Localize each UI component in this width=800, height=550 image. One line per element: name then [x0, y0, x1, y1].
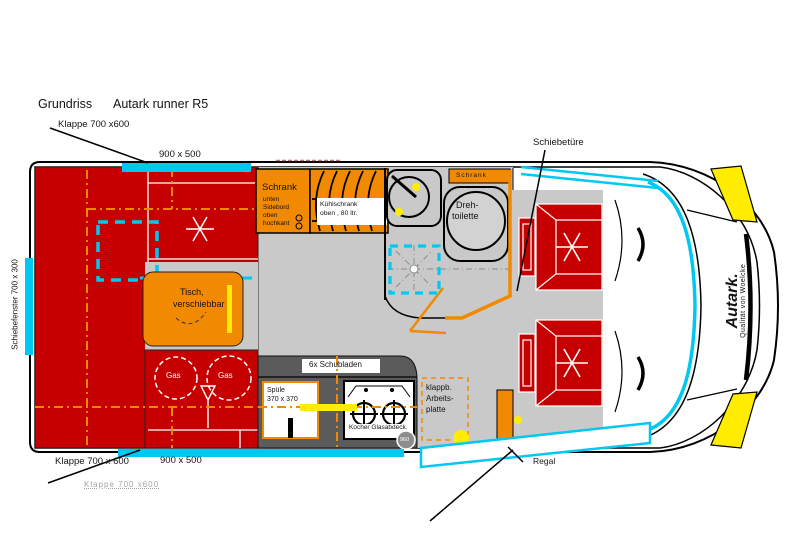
- table-rail: [227, 285, 232, 333]
- window-rear-side: [25, 258, 33, 355]
- drawers-label: 6x Schubladen: [309, 361, 362, 370]
- page-title: Grundriss: [38, 97, 92, 111]
- dim-circle-label: 960: [400, 437, 409, 443]
- label-bottom-hatch: Klappe 700 x 600: [55, 457, 129, 468]
- model-name: Autark runner R5: [113, 97, 208, 111]
- label-sliding-door: Schiebetüre: [533, 138, 584, 149]
- fridge-l2: oben , 80 ltr.: [320, 210, 357, 218]
- gas-label-2: Gas: [218, 372, 233, 381]
- worktop-l1: klappb.: [426, 384, 452, 393]
- toilet-l1: Dreh-: [456, 200, 479, 210]
- sink-l1: Spüle: [267, 387, 285, 395]
- floorplan-canvas: Grundriss Autark runner R5 Klappe 700 x6…: [0, 0, 800, 550]
- swivel-toilet: [444, 187, 508, 261]
- toilet-l2: toilette: [452, 211, 479, 221]
- label-top-window: 900 x 500: [159, 150, 201, 161]
- wardrobe-l2: unten: [263, 196, 279, 203]
- table-l1: Tisch,: [180, 287, 204, 297]
- brand-sub: Qualität von Woelcke: [740, 239, 748, 363]
- tap-icon: [288, 418, 293, 438]
- kitchen-rail: [300, 404, 357, 411]
- shelf-label: Regal: [533, 457, 555, 467]
- label-top-hatch: Klappe 700 x600: [58, 120, 129, 131]
- label-bottom-window: 900 x 500: [160, 456, 202, 467]
- wardrobe-title: Schrank: [262, 183, 297, 194]
- window-top: [122, 163, 251, 172]
- fridge-l1: Kühlschrank: [320, 201, 357, 209]
- wardrobe-l5: hochkant: [263, 220, 289, 227]
- cooker-label: Kocher Glasabdeck.: [348, 424, 409, 431]
- label-bottom-hatch-ghost: Klappe 700 x600: [84, 481, 159, 490]
- label-side-window: Schiebefenster 700 x 300: [12, 249, 21, 359]
- wash-basin: [387, 170, 441, 226]
- worktop-l2: Arbeits-: [426, 395, 454, 404]
- sink-l2: 370 x 370: [267, 396, 298, 404]
- rear-bench: [145, 350, 258, 448]
- worktop-l3: platte: [426, 406, 446, 415]
- wardrobe-l4: oben: [263, 212, 277, 219]
- brand-block: Autark. Qualität von Woelcke: [724, 239, 748, 363]
- wardrobe-l3: Sidebord: [263, 204, 289, 211]
- gas-label-1: Gas: [166, 372, 181, 381]
- table-l2: verschiebbar: [173, 299, 225, 309]
- bath-cabinet-label: Schrank: [456, 172, 487, 179]
